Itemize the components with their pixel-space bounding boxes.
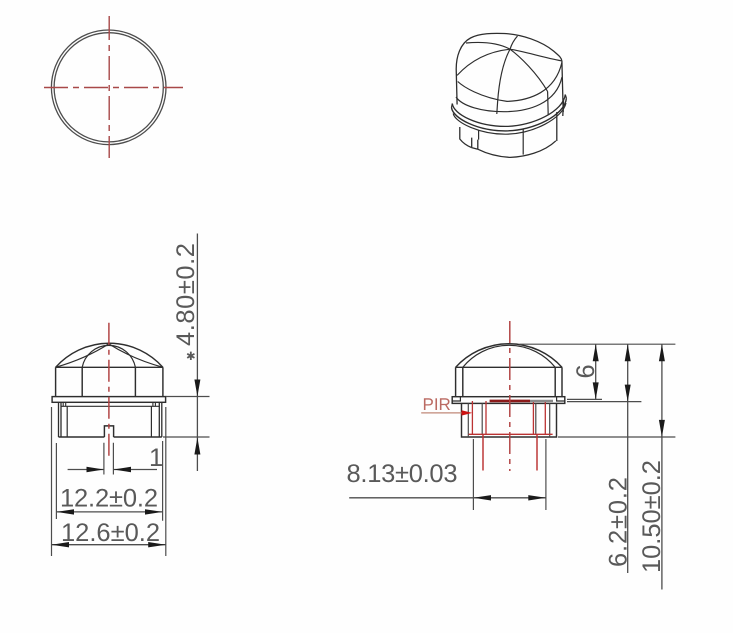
svg-text:1: 1 — [149, 444, 163, 472]
svg-text:6: 6 — [572, 364, 600, 378]
svg-text:8.13±0.03: 8.13±0.03 — [347, 460, 458, 488]
svg-text:6.2±0.2: 6.2±0.2 — [605, 477, 633, 567]
svg-text:10.50±0.2: 10.50±0.2 — [638, 460, 666, 573]
svg-text:PIR: PIR — [423, 395, 451, 414]
svg-text:12.6±0.2: 12.6±0.2 — [61, 519, 160, 547]
svg-text:✱: ✱ — [186, 351, 196, 363]
svg-text:12.2±0.2: 12.2±0.2 — [60, 485, 158, 513]
svg-text:4.80±0.2: 4.80±0.2 — [172, 243, 200, 346]
